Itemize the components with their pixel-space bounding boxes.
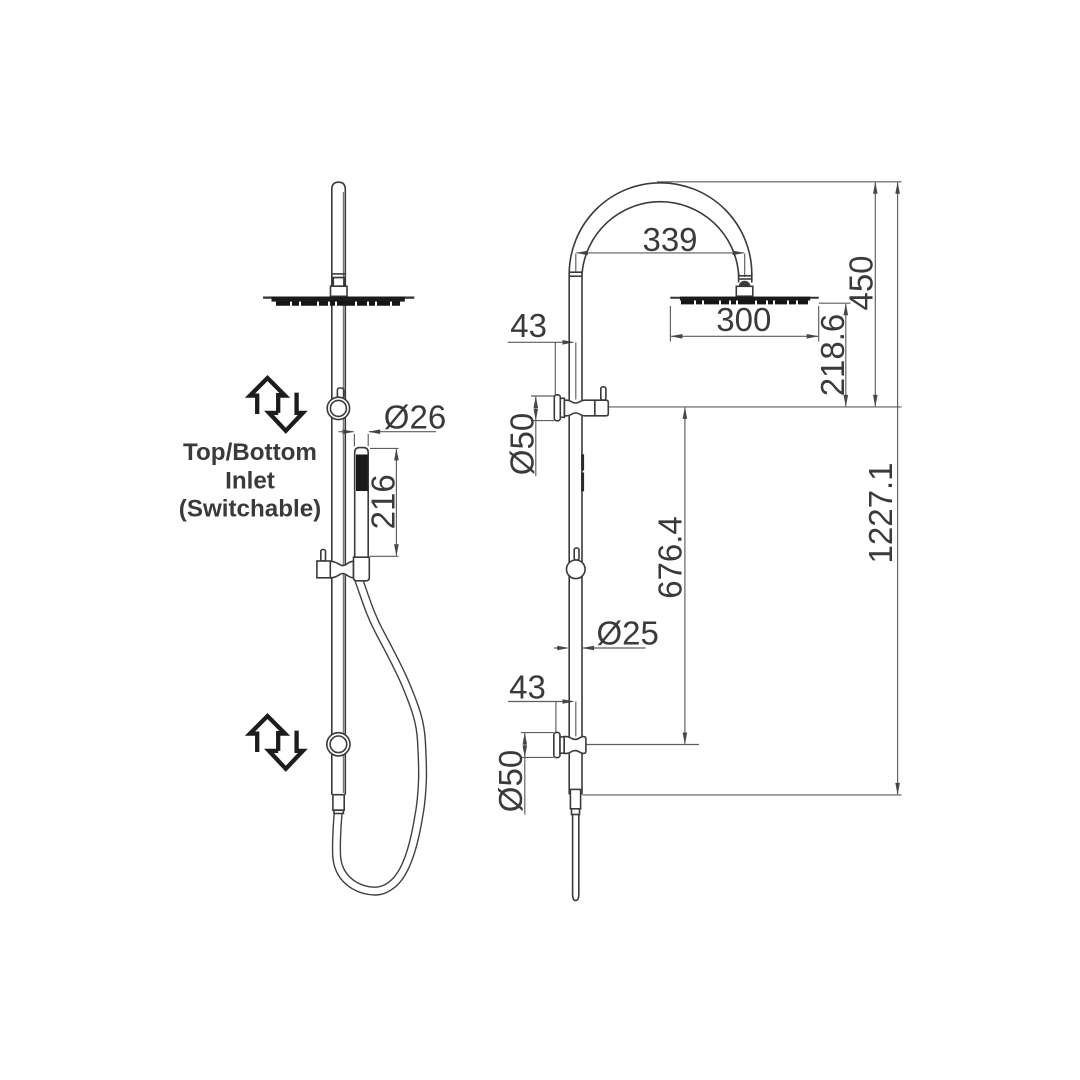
svg-text:218.6: 218.6 xyxy=(814,314,851,397)
svg-text:216: 216 xyxy=(364,474,401,529)
svg-text:676.4: 676.4 xyxy=(652,516,689,599)
svg-text:Ø50: Ø50 xyxy=(504,413,541,475)
svg-text:Ø26: Ø26 xyxy=(384,399,446,436)
svg-text:43: 43 xyxy=(510,307,547,344)
svg-text:300: 300 xyxy=(716,301,771,338)
svg-text:Top/Bottom: Top/Bottom xyxy=(183,439,317,466)
svg-text:339: 339 xyxy=(642,221,697,258)
svg-text:Ø25: Ø25 xyxy=(597,615,659,652)
svg-text:1227.1: 1227.1 xyxy=(862,463,899,564)
svg-text:450: 450 xyxy=(843,255,880,310)
svg-text:(Switchable): (Switchable) xyxy=(179,496,321,523)
svg-text:Ø50: Ø50 xyxy=(492,750,529,812)
svg-text:43: 43 xyxy=(509,669,546,706)
svg-text:Inlet: Inlet xyxy=(225,467,275,494)
